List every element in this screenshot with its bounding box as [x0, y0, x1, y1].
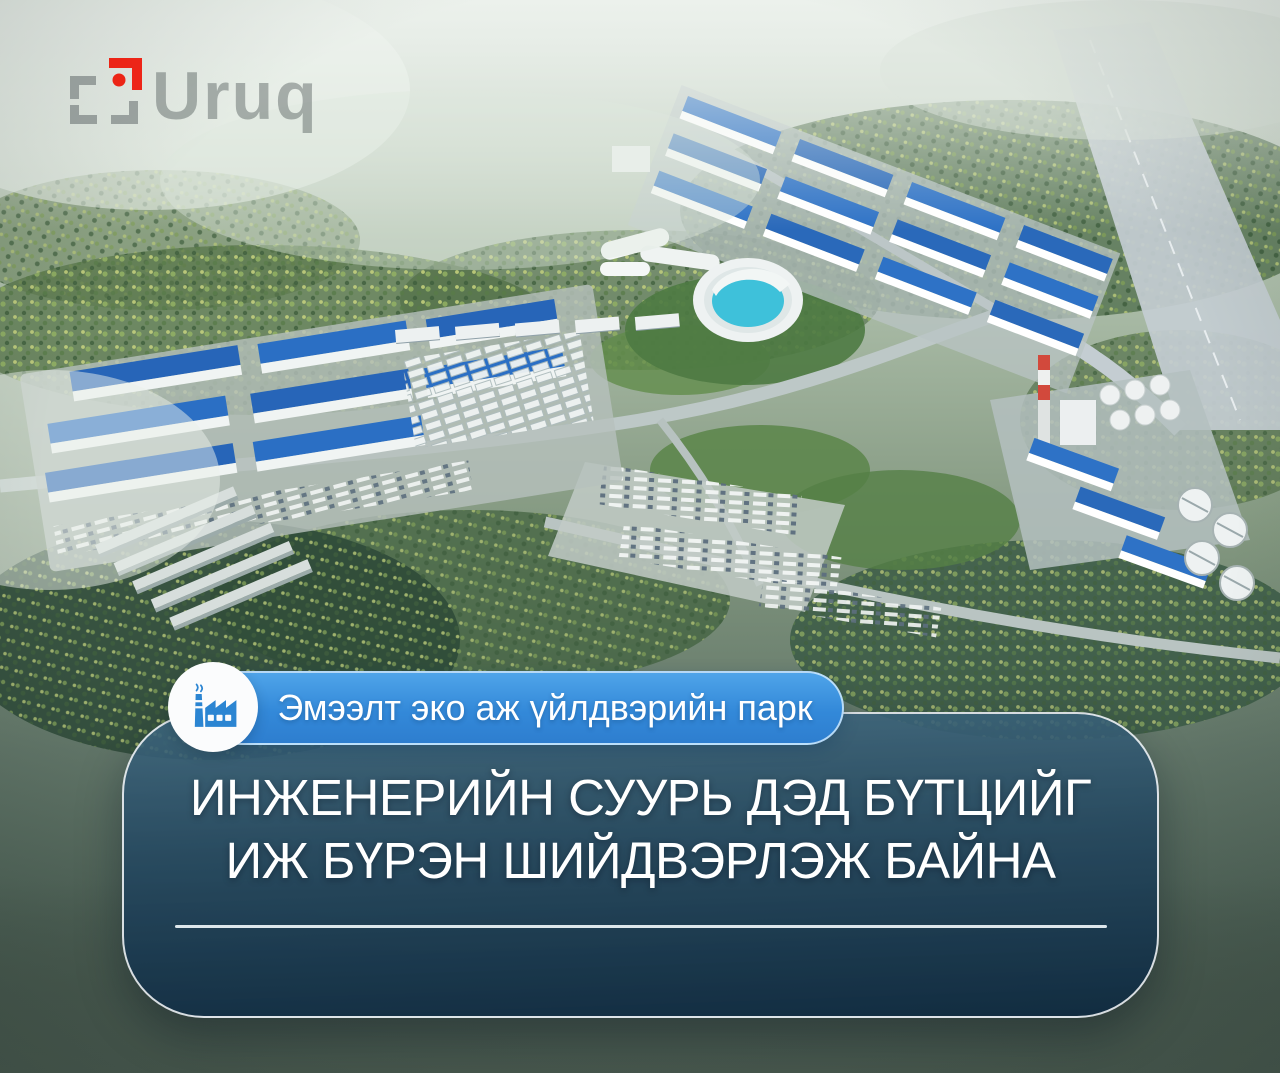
headline-line-2: ИЖ БҮРЭН ШИЙДВЭРЛЭЖ БАЙНА	[124, 829, 1157, 892]
park-badge-pill: Эмээлт эко аж үйлдвэрийн парк	[204, 671, 844, 745]
park-badge: Эмээлт эко аж үйлдвэрийн парк	[168, 662, 848, 754]
factory-icon-circle	[168, 662, 258, 752]
park-badge-label: Эмээлт эко аж үйлдвэрийн парк	[277, 687, 812, 729]
headline-line-1: ИНЖЕНЕРИЙН СУУРЬ ДЭД БҮТЦИЙГ	[124, 766, 1157, 829]
poster: Uruq ИНЖЕНЕРИЙН СУУРЬ ДЭД БҮТЦИЙГ ИЖ БҮР…	[0, 0, 1280, 1073]
headline-card: ИНЖЕНЕРИЙН СУУРЬ ДЭД БҮТЦИЙГ ИЖ БҮРЭН ШИ…	[122, 712, 1159, 1018]
uruq-wordmark: Uruq	[152, 56, 319, 136]
uruq-logo-mark-icon	[64, 56, 144, 136]
uruq-logo: Uruq	[64, 56, 319, 136]
divider-line	[175, 925, 1107, 928]
headline-text: ИНЖЕНЕРИЙН СУУРЬ ДЭД БҮТЦИЙГ ИЖ БҮРЭН ШИ…	[124, 766, 1157, 892]
factory-icon	[187, 683, 239, 731]
